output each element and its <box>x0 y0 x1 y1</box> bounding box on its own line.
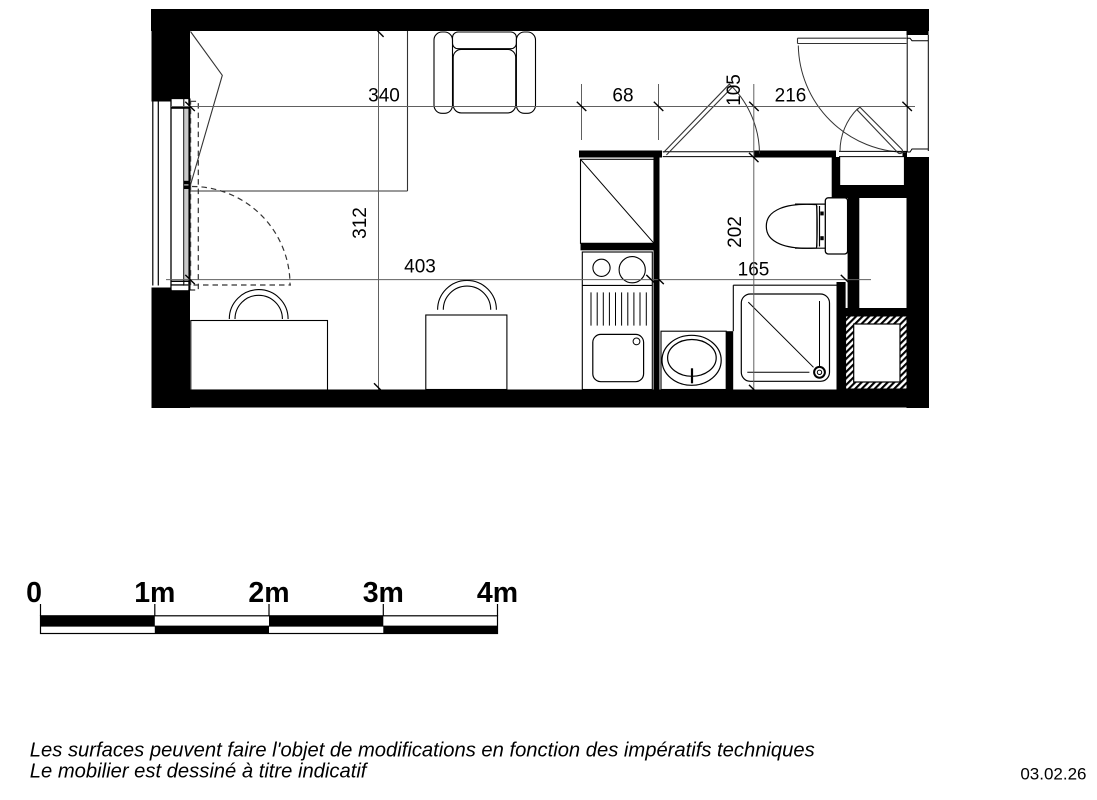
svg-text:4m: 4m <box>477 577 518 609</box>
svg-text:3m: 3m <box>363 577 404 609</box>
svg-text:312: 312 <box>350 207 371 239</box>
svg-text:Le mobilier est dessiné à titr: Le mobilier est dessiné à titre indicati… <box>30 761 369 783</box>
svg-text:340: 340 <box>368 86 400 107</box>
svg-text:202: 202 <box>725 216 746 248</box>
svg-text:403: 403 <box>404 257 436 278</box>
svg-text:68: 68 <box>612 86 633 107</box>
svg-text:Les surfaces peuvent faire l'o: Les surfaces peuvent faire l'objet de mo… <box>30 739 815 761</box>
svg-text:1m: 1m <box>134 577 175 609</box>
svg-text:03.02.26: 03.02.26 <box>1020 765 1086 784</box>
svg-text:2m: 2m <box>248 577 289 609</box>
svg-text:105: 105 <box>724 74 745 106</box>
svg-text:0: 0 <box>26 577 42 609</box>
svg-text:216: 216 <box>775 86 807 107</box>
